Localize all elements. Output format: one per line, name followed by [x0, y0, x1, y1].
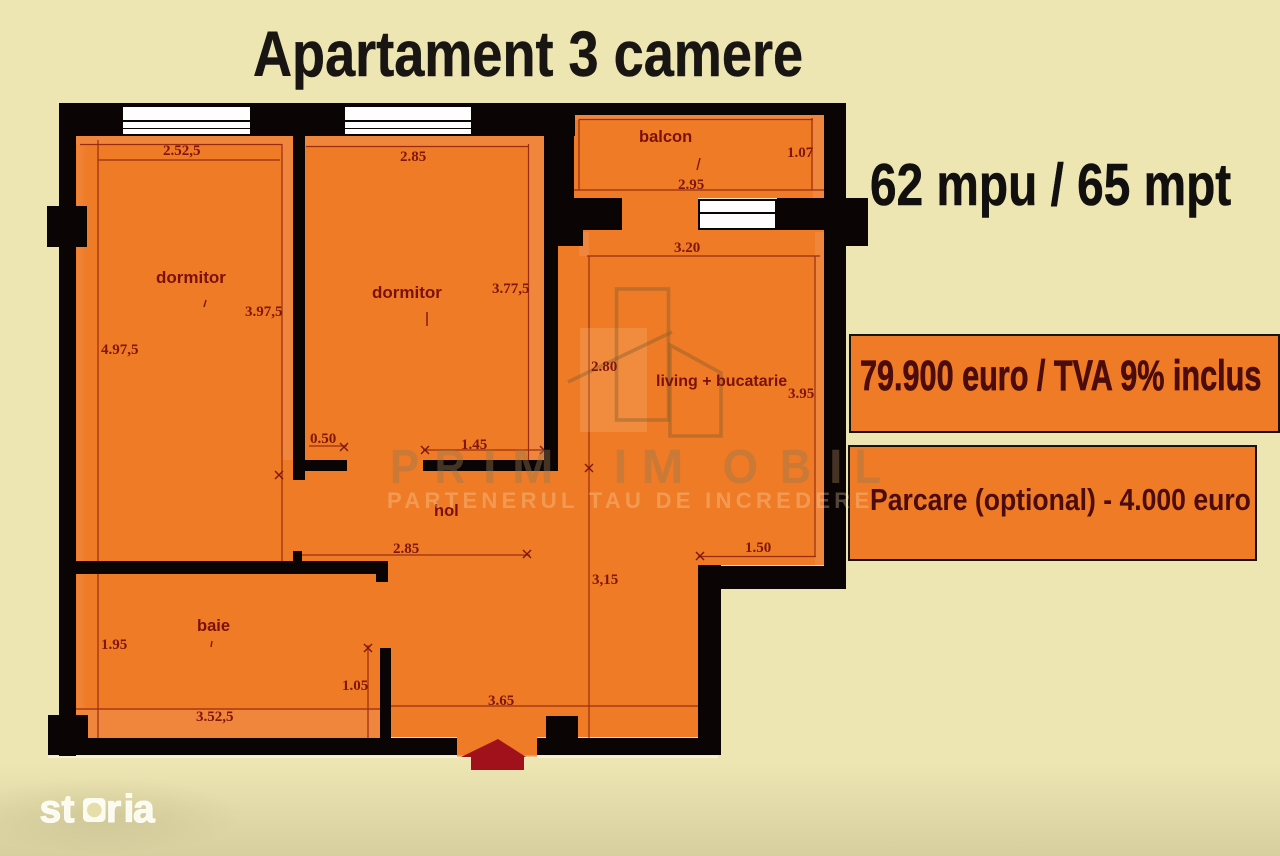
svg-text:r: r: [106, 788, 121, 831]
svg-text:a: a: [133, 788, 155, 831]
svg-text:t: t: [62, 788, 75, 831]
svg-text:s: s: [40, 788, 62, 831]
